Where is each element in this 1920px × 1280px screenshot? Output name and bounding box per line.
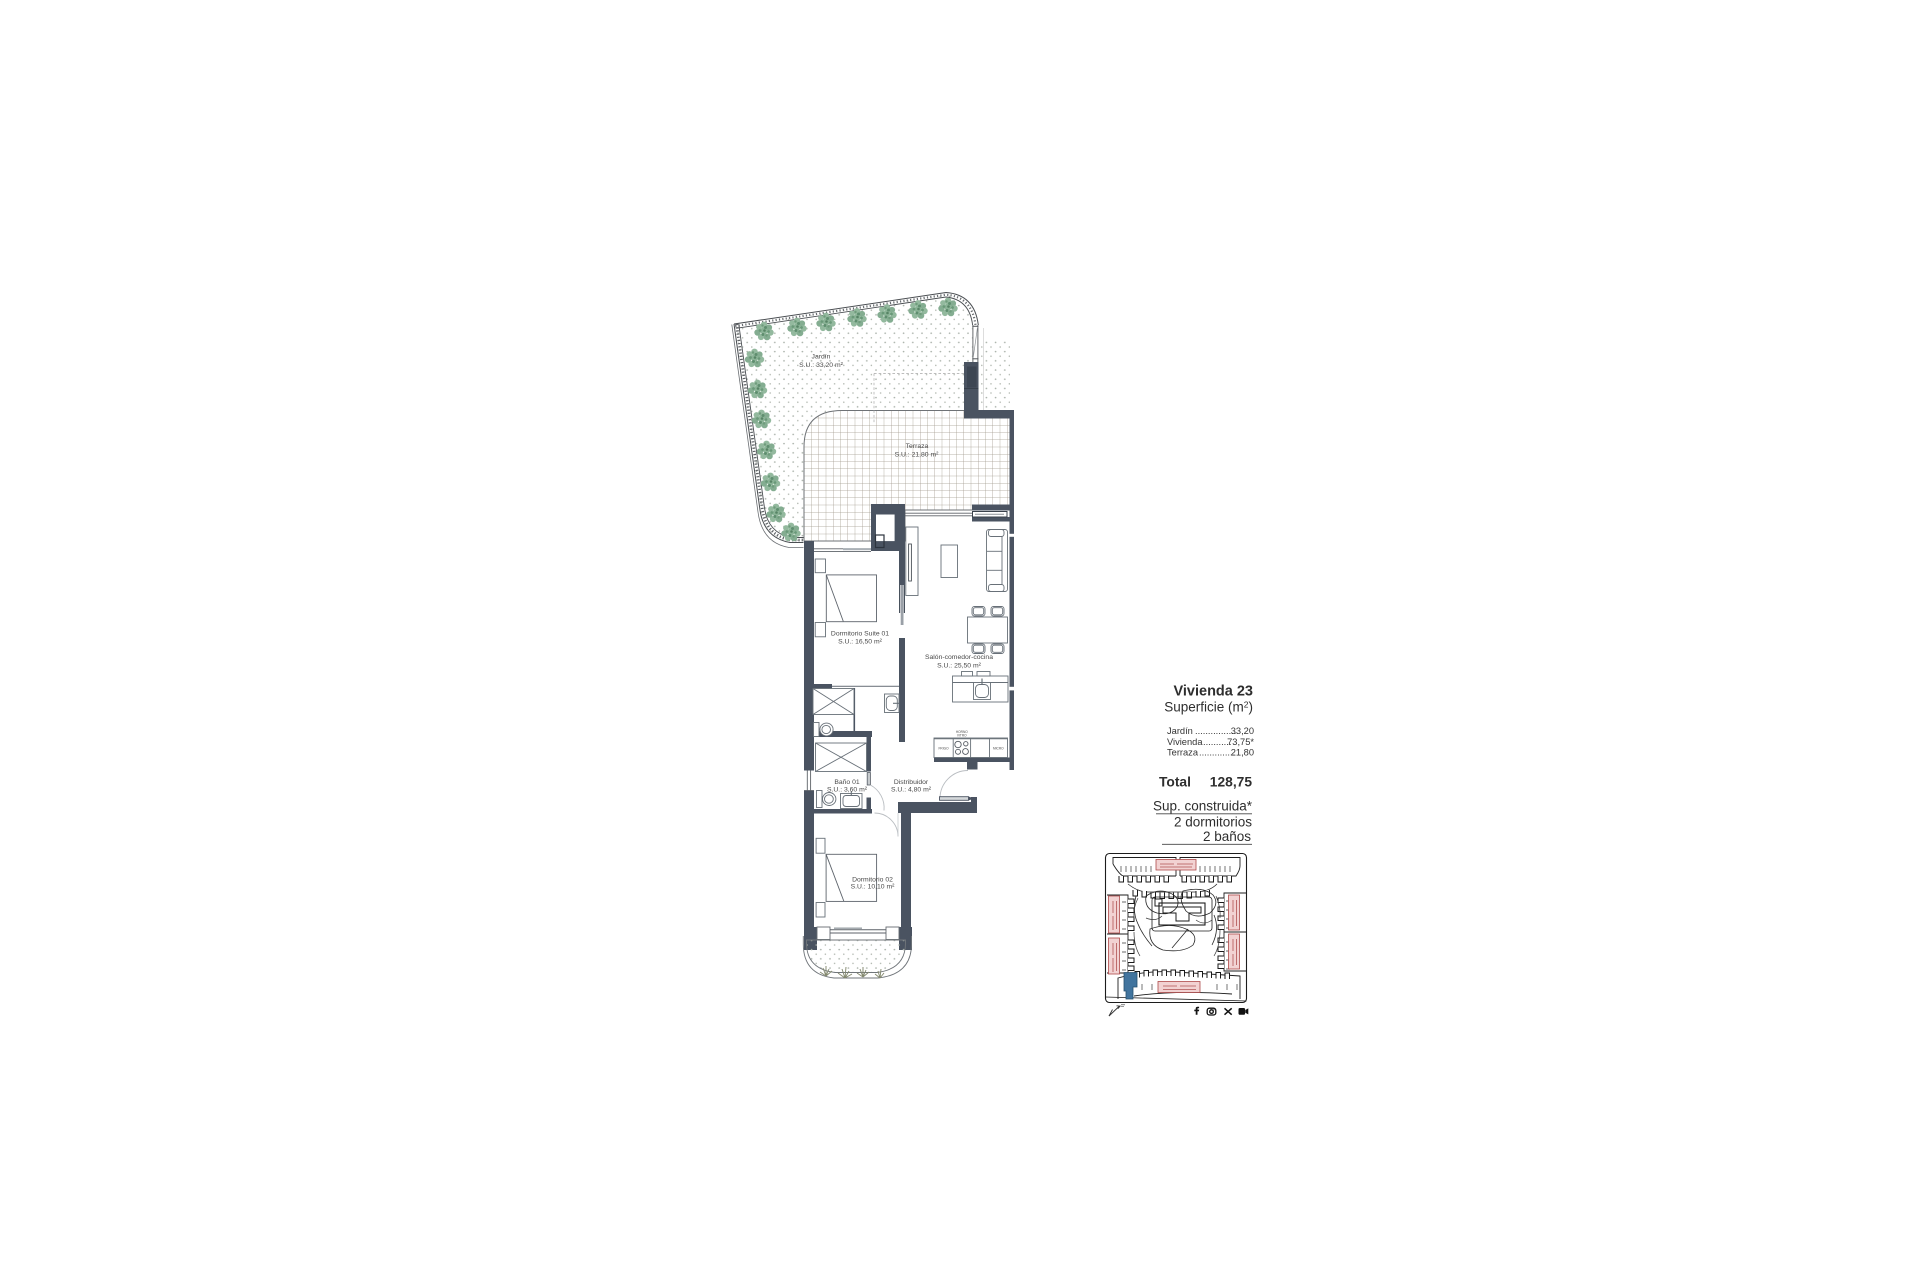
svg-text:2 dormitorios: 2 dormitorios [1174,815,1252,830]
svg-text:S.U.: 3,60 m²: S.U.: 3,60 m² [827,787,868,794]
svg-text:Distribuidor: Distribuidor [894,779,929,786]
svg-text:Jardín: Jardín [812,354,831,361]
svg-text:S.U.: 33,20 m²: S.U.: 33,20 m² [799,362,844,369]
svg-text:Superficie (m2): Superficie (m2) [1164,700,1253,715]
svg-text:Terraza: Terraza [906,443,929,450]
svg-text:Baño 01: Baño 01 [834,779,860,786]
svg-text:21,80: 21,80 [1231,748,1254,758]
svg-text:Sup. construida*: Sup. construida* [1153,799,1253,814]
svg-text:S.U.: 16,50 m²: S.U.: 16,50 m² [838,639,883,646]
svg-text:73,75*: 73,75* [1227,737,1254,747]
svg-text:Dormitorio 02: Dormitorio 02 [852,876,893,883]
svg-text:Salón-comedor-cocina: Salón-comedor-cocina [925,654,993,661]
svg-text:S.U.: 25,50 m²: S.U.: 25,50 m² [937,663,982,670]
svg-text:S.U.: 21,80 m²: S.U.: 21,80 m² [895,452,940,459]
svg-text:S.U.: 4,80 m²: S.U.: 4,80 m² [891,787,932,794]
svg-text:128,75: 128,75 [1210,775,1253,790]
svg-text:Jardín: Jardín [1167,726,1193,736]
svg-text:33,20: 33,20 [1231,726,1254,736]
svg-text:Vivienda 23: Vivienda 23 [1173,684,1253,700]
svg-text:2 baños: 2 baños [1203,829,1251,844]
svg-text:Total: Total [1159,775,1191,790]
svg-text:VITRO: VITRO [957,734,967,738]
svg-text:..............: .............. [1199,748,1235,758]
svg-text:S.U.: 10,10 m²: S.U.: 10,10 m² [851,883,896,890]
svg-text:Vivienda: Vivienda [1167,737,1203,747]
svg-text:MICRO: MICRO [993,746,1004,750]
svg-text:Terraza: Terraza [1167,748,1199,758]
svg-text:FRIGO: FRIGO [938,746,949,750]
svg-text:Dormitorio Suite 01: Dormitorio Suite 01 [831,630,889,637]
